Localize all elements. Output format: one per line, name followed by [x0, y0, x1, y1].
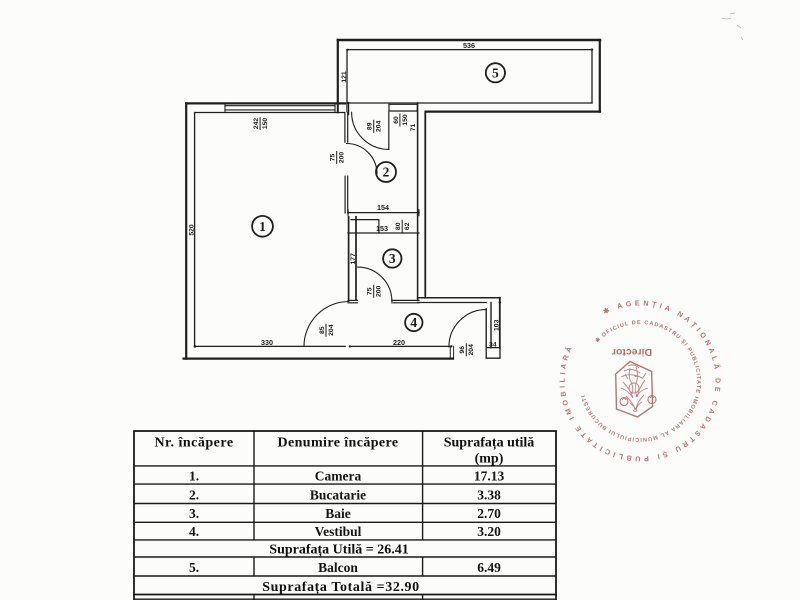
svg-text:150: 150	[262, 118, 269, 130]
svg-text:71: 71	[410, 124, 417, 132]
svg-text:Suprafața Totală =32.90: Suprafața Totală =32.90	[262, 580, 420, 595]
svg-text:220: 220	[393, 338, 405, 347]
svg-text:4.: 4.	[189, 524, 199, 539]
svg-text:200: 200	[339, 152, 346, 164]
svg-text:121: 121	[341, 71, 348, 83]
svg-text:3.20: 3.20	[477, 524, 501, 539]
svg-text:Vestibul: Vestibul	[315, 524, 362, 539]
svg-text:2.: 2.	[189, 487, 199, 502]
svg-text:Camera: Camera	[315, 469, 362, 484]
svg-text:103: 103	[493, 319, 500, 331]
svg-text:536: 536	[463, 41, 475, 50]
svg-text:204: 204	[468, 344, 475, 356]
svg-text:6.49: 6.49	[477, 560, 501, 575]
svg-text:154: 154	[377, 203, 389, 212]
svg-text:60: 60	[393, 116, 400, 124]
svg-text:330: 330	[261, 338, 273, 347]
svg-text:520: 520	[188, 224, 195, 236]
svg-text:80: 80	[395, 222, 402, 230]
svg-text:(mp): (mp)	[475, 452, 504, 467]
svg-text:5.: 5.	[189, 560, 199, 575]
svg-text:34: 34	[489, 342, 497, 349]
svg-text:2.70: 2.70	[477, 506, 501, 521]
svg-text:75: 75	[330, 154, 337, 162]
svg-text:75: 75	[367, 287, 374, 295]
svg-text:Suprafața Utilă = 26.41: Suprafața Utilă = 26.41	[269, 543, 408, 558]
svg-text:85: 85	[319, 326, 326, 334]
svg-text:4: 4	[410, 315, 417, 330]
svg-text:1: 1	[259, 219, 266, 234]
svg-text:242: 242	[253, 118, 260, 130]
svg-text:Balcon: Balcon	[318, 560, 358, 575]
svg-text:3.: 3.	[189, 506, 199, 521]
svg-text:200: 200	[376, 285, 383, 297]
svg-text:1.: 1.	[189, 469, 199, 484]
svg-text:89: 89	[367, 122, 374, 130]
svg-text:204: 204	[376, 120, 383, 132]
svg-text:2: 2	[383, 165, 390, 180]
svg-text:153: 153	[376, 224, 388, 233]
svg-text:Bucatarie: Bucatarie	[310, 487, 366, 502]
svg-text:150: 150	[402, 114, 409, 126]
svg-text:17.13: 17.13	[474, 469, 505, 484]
svg-text:Suprafața utilă: Suprafața utilă	[444, 436, 535, 451]
svg-text:62: 62	[404, 222, 411, 230]
svg-text:3: 3	[389, 251, 396, 266]
svg-text:Director: Director	[612, 346, 652, 358]
svg-text:✱ OFICIUL DE CADASTRU ȘI PUBLI: ✱ OFICIUL DE CADASTRU ȘI PUBLICITATE IMO…	[581, 320, 701, 442]
svg-text:Nr. încăpere: Nr. încăpere	[154, 436, 233, 451]
svg-text:Denumire încăpere: Denumire încăpere	[278, 436, 399, 451]
svg-text:177: 177	[350, 253, 357, 265]
svg-text:Baie: Baie	[325, 506, 351, 521]
svg-text:204: 204	[328, 324, 335, 336]
svg-text:5: 5	[492, 65, 499, 80]
svg-text:96: 96	[459, 346, 466, 354]
svg-text:3.38: 3.38	[477, 487, 501, 502]
